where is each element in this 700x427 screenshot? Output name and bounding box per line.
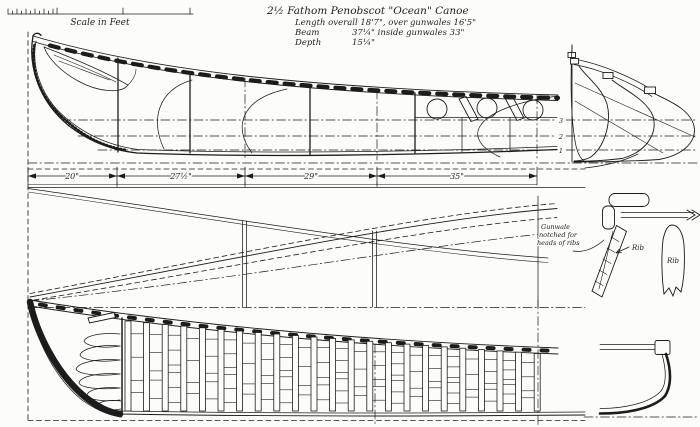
section-2: [574, 80, 654, 162]
beam-value: 37¼" inside gunwales 33": [352, 27, 464, 38]
rib: [534, 354, 540, 412]
beam-label: Beam: [294, 28, 319, 38]
waterline-label-2: 2: [558, 133, 563, 141]
gunwale-bottom-line: [33, 42, 558, 101]
rib: [218, 329, 224, 411]
plan-thwart-2: [373, 231, 377, 307]
gunwale-lashings: [50, 46, 558, 99]
sheathing-tongue-3: [76, 360, 120, 376]
bow-flap-tie: [128, 69, 136, 85]
rib: [367, 341, 373, 411]
rib: [181, 326, 187, 411]
section-curve-a: [157, 80, 192, 149]
dimension-lower-line: [28, 182, 537, 187]
construction-view: [28, 299, 585, 425]
waterline-label-3: 3: [559, 117, 563, 125]
sheathing-tongue-2: [80, 346, 120, 362]
gunwale-note-line2: notched for: [539, 231, 578, 239]
stem-detail-head-block: [655, 341, 670, 355]
rib: [255, 333, 261, 412]
canoe-plan-sheet: Scale in Feet 2½ Fathom Penobscot "Ocean…: [0, 0, 700, 427]
sheathing-tongue-4: [79, 374, 120, 389]
scale-bar: Scale in Feet: [8, 8, 193, 28]
length-spec: Length overall 18'7", over gunwales 16'5…: [294, 18, 476, 28]
dimension-label-3: 29": [303, 172, 318, 181]
dimension-label-1: 20": [64, 172, 79, 181]
rib: [292, 336, 298, 412]
dimension-row: 20" 27½" 29" 35": [28, 154, 638, 187]
rib: [330, 339, 336, 412]
dimension-label-4: 35": [450, 172, 464, 181]
gunwale-cap-section: [609, 194, 649, 207]
waterline-labels: 3 2 1: [558, 117, 563, 155]
rib: [162, 325, 168, 412]
section-curve-b: [242, 89, 287, 153]
rib: [199, 328, 205, 411]
body-plan-diagonal-2: [575, 101, 663, 153]
construction-bottom-outer: [120, 414, 585, 416]
plan-sheer-halfbreadth-1: [28, 189, 548, 259]
section-1: [574, 66, 608, 161]
rib: [385, 343, 391, 411]
deck-circle-3: [523, 100, 543, 120]
rib: [144, 323, 150, 411]
stem-detail: [584, 341, 699, 418]
body-plan: [566, 45, 698, 162]
stem-detail-gunwale-lines: [600, 345, 657, 350]
waterline-label-1: 1: [559, 147, 563, 155]
gunwale-section-3: [645, 87, 656, 94]
scale-bar-label: Scale in Feet: [70, 18, 130, 28]
tenon-arrow: [687, 210, 700, 220]
sheathing-tongue-5: [87, 387, 120, 400]
rib: [125, 321, 131, 411]
gunwale-note-line3: heads of ribs: [537, 239, 580, 247]
dimension-label-2: 27½": [169, 172, 192, 181]
gunwale-section-1: [571, 59, 579, 65]
gunwale-note-line1: Gunwale: [541, 223, 570, 231]
body-plan-diagonal-1: [575, 83, 695, 137]
deck-circle-1: [427, 99, 447, 119]
stem-detail-inner-curve: [600, 354, 665, 409]
rib-cage: [125, 321, 540, 411]
gunwale-section-2: [603, 73, 613, 79]
canoe-lines-drawing: Scale in Feet 2½ Fathom Penobscot "Ocean…: [0, 0, 700, 427]
rib: [311, 337, 317, 411]
rib: [404, 344, 410, 411]
title-block: 2½ Fathom Penobscot "Ocean" Canoe Length…: [266, 5, 476, 48]
rib: [478, 350, 484, 411]
scale-bar-major-ticks: [123, 8, 190, 14]
rib: [497, 351, 503, 411]
depth-value: 15¼": [352, 37, 375, 48]
drawing-title: 2½ Fathom Penobscot "Ocean" Canoe: [266, 5, 469, 17]
body-plan-sheer-outer: [574, 59, 655, 92]
rib: [441, 347, 447, 411]
notched-gunwale-strip: [592, 226, 627, 298]
rib: [237, 331, 243, 411]
rib: [274, 334, 280, 411]
construction-gunwale-lashings: [40, 305, 558, 352]
scale-bar-minor-ticks: [8, 8, 57, 14]
half-breadth-plan: [28, 188, 585, 308]
deck-circle-2: [477, 98, 497, 118]
bow-tip-curl: [33, 33, 41, 36]
depth-label: Depth: [294, 38, 321, 48]
gunwale-rail-section: [603, 206, 615, 229]
rib-blade-label: Rib: [666, 257, 680, 265]
sheathing-tongue-1: [84, 333, 120, 347]
rib: [516, 352, 522, 411]
rib: [423, 346, 429, 412]
section-3: [574, 93, 694, 162]
plan-waterline-solid: [30, 209, 557, 298]
rib: [348, 340, 354, 411]
plan-waterline-dashed-2: [34, 218, 557, 301]
profile-view: [32, 33, 558, 160]
rib-label: Rib: [631, 244, 645, 252]
thwart-tenon-lines: [621, 213, 694, 218]
rib: [460, 348, 466, 411]
